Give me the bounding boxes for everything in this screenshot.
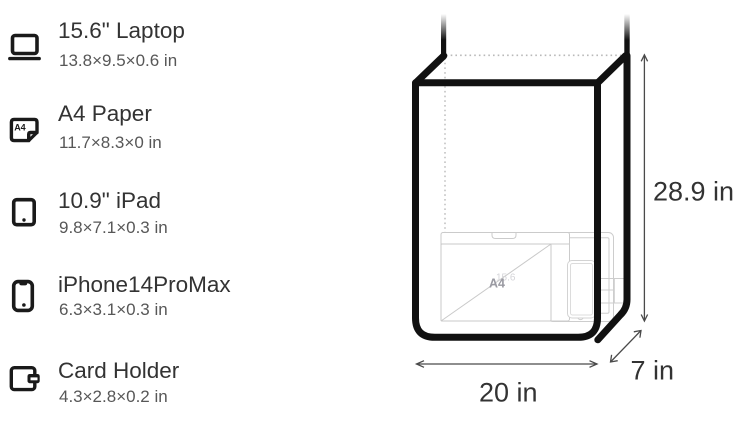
svg-text:28.9 in: 28.9 in [653, 177, 734, 207]
svg-text:A4: A4 [489, 277, 505, 291]
svg-text:7 in: 7 in [631, 356, 675, 386]
svg-text:20 in: 20 in [479, 378, 538, 408]
